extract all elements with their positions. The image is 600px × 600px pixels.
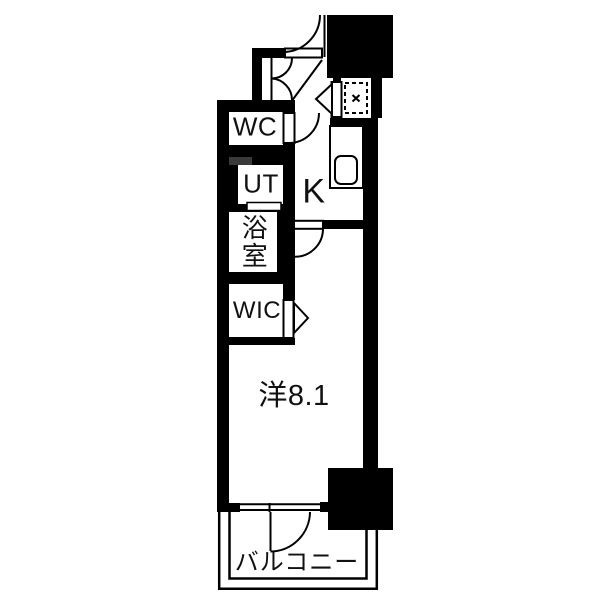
entrance-door-arc (283, 15, 320, 52)
bathroom-door-leaf (247, 203, 281, 211)
label-western-room: 洋8.1 (258, 382, 329, 412)
label-bathroom: 浴室 (240, 214, 267, 270)
label-wc: WC (233, 114, 277, 141)
wall-entry-top (252, 48, 285, 58)
kitchen-sink-icon (335, 156, 357, 184)
wall-bath-east (277, 212, 283, 272)
label-balcony: バルコニー (235, 551, 360, 575)
wall-ps-right (371, 78, 382, 118)
label-kitchen: K (302, 175, 325, 210)
wall-kitchen-room (323, 220, 363, 229)
floorplan-canvas: WC UT 浴室 WIC K 洋8.1 バルコニー (0, 0, 600, 600)
shelf-strip (229, 157, 252, 165)
entrance-door-leaf (285, 49, 322, 58)
wc-door-leaf (284, 113, 295, 143)
kitchen-room-door-arc (295, 229, 323, 257)
wall-bath-wic (229, 272, 283, 284)
balcony-opening (240, 503, 329, 552)
shoe-cabinet-door-arc-bottom (272, 79, 293, 101)
pipe-space (316, 78, 371, 118)
genkan-step-line (291, 60, 322, 102)
kitchen-fixtures (330, 126, 363, 188)
wic-door-leaf (284, 300, 294, 338)
block-bottom-right (328, 468, 393, 530)
wall-wic-bottom-east (283, 338, 295, 345)
wall-right-outer (363, 78, 378, 512)
wall-entry-left (252, 58, 262, 100)
floorplan-drawing (0, 0, 600, 600)
wic-door-triangle-icon (294, 303, 308, 333)
wall-room-bottom (217, 503, 240, 512)
label-ut: UT (243, 171, 279, 198)
kitchen-room-door-leaf (294, 221, 323, 229)
entrance (272, 15, 325, 102)
pipe-space-door-triangle-icon (316, 84, 332, 114)
wall-wic-bottom (217, 337, 283, 345)
wall-column-east-lower (283, 229, 295, 300)
wall-under-ps (330, 118, 363, 126)
wall-left-outer (217, 100, 229, 512)
balcony-door-arc (271, 512, 311, 552)
label-wic: WIC (233, 299, 281, 323)
shoe-cabinet-door-arc-top (272, 58, 293, 79)
wall-wc-ut-lower (252, 157, 283, 165)
wall-wc-ut (229, 145, 283, 157)
block-top-right (327, 15, 393, 78)
